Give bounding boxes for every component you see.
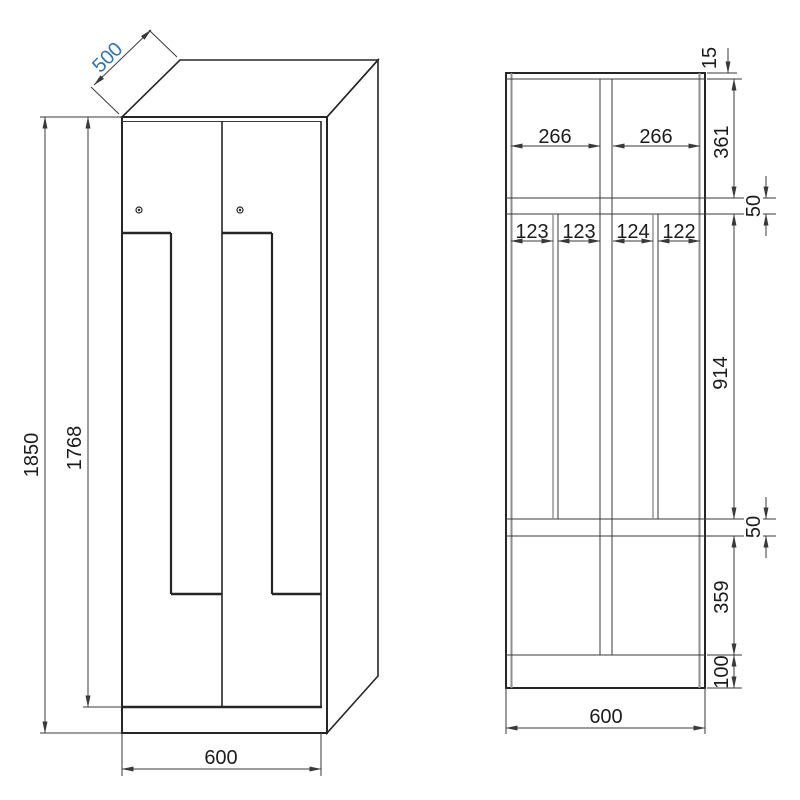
dimension-door-height: 1768 <box>64 117 122 707</box>
dimension-plinth-height: 100 <box>711 655 734 689</box>
left-lock-pin <box>138 209 140 211</box>
plinth-height-label: 100 <box>711 655 733 688</box>
extension-line <box>91 87 119 114</box>
top-compartment-height-label: 361 <box>711 125 733 158</box>
front-width-label: 600 <box>204 747 237 769</box>
dimension-top-compartment-height: 361 <box>711 79 734 198</box>
overall-height-label: 1850 <box>21 433 43 478</box>
dimension-bottom-compartment-height: 359 <box>711 536 734 655</box>
dimension-depth: 500 <box>88 30 177 114</box>
dimension-overall-height: 1850 <box>21 117 122 733</box>
dimension-hook-section-3: 124 <box>613 221 653 243</box>
compartment-width-label: 266 <box>538 126 571 148</box>
dimension-middle-section-height: 914 <box>710 214 734 519</box>
cabinet-top-face <box>122 60 378 117</box>
dimension-compartment-width-right: 266 <box>613 126 700 148</box>
carcass-outline <box>506 73 705 688</box>
locker-dimension-drawing: 1850 1768 500 600 <box>0 0 800 800</box>
right-door-lock <box>237 207 243 213</box>
dimension-hook-section-2: 123 <box>558 221 600 243</box>
dimension-top-panel: 15 <box>699 47 728 73</box>
bottom-compartment-height-label: 359 <box>711 580 733 613</box>
depth-label: 500 <box>88 38 127 77</box>
cabinet-front-face <box>122 117 327 733</box>
extension-line <box>149 30 177 57</box>
interior-width-label: 600 <box>589 706 622 728</box>
cabinet-side-face <box>327 60 378 733</box>
dimension-hook-section-1: 123 <box>511 221 553 243</box>
dimension-hook-section-4: 122 <box>658 221 700 243</box>
front-view: 1850 1768 500 600 <box>21 30 378 776</box>
top-panel-label: 15 <box>699 47 721 69</box>
dimension-front-width: 600 <box>122 733 321 776</box>
dimension-upper-shelf-thickness: 50 <box>743 176 766 236</box>
compartment-width-label: 266 <box>639 126 672 148</box>
hook-section-label: 123 <box>515 221 548 243</box>
hook-section-label: 124 <box>616 221 649 243</box>
hook-section-label: 123 <box>562 221 595 243</box>
dimension-lower-shelf-thickness: 50 <box>743 497 766 558</box>
dimension-interior-width: 600 <box>506 688 705 734</box>
left-door-lock <box>136 207 142 213</box>
drawing-canvas: 1850 1768 500 600 <box>0 0 800 800</box>
middle-section-height-label: 914 <box>710 356 732 389</box>
interior-view: 266 266 123 123 124 122 <box>506 47 776 734</box>
right-lock-pin <box>239 209 241 211</box>
shelf-thickness-label: 50 <box>743 516 765 538</box>
door-height-label: 1768 <box>64 426 86 471</box>
dimension-compartment-width-left: 266 <box>511 126 600 148</box>
hook-section-label: 122 <box>662 221 695 243</box>
shelf-thickness-label: 50 <box>743 195 765 217</box>
